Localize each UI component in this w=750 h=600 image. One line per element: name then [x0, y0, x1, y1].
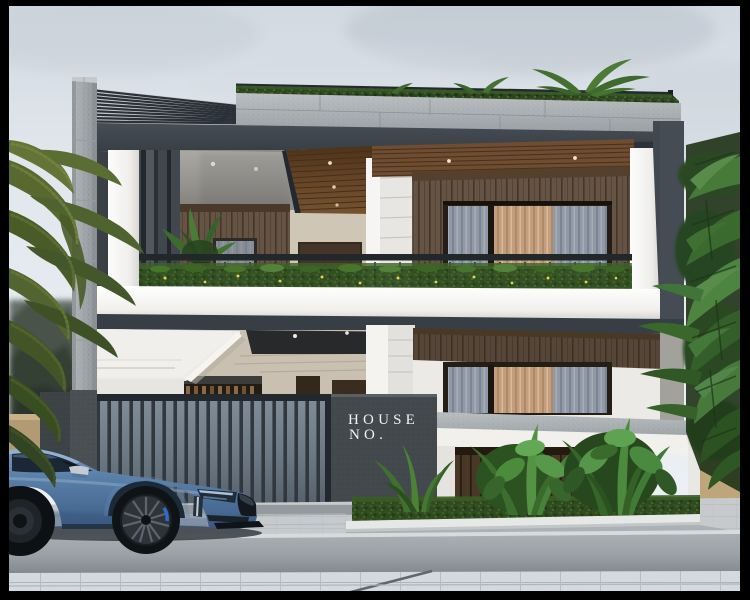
svg-text:HOUSE: HOUSE	[348, 412, 419, 428]
svg-text:NO.: NO.	[349, 427, 387, 443]
